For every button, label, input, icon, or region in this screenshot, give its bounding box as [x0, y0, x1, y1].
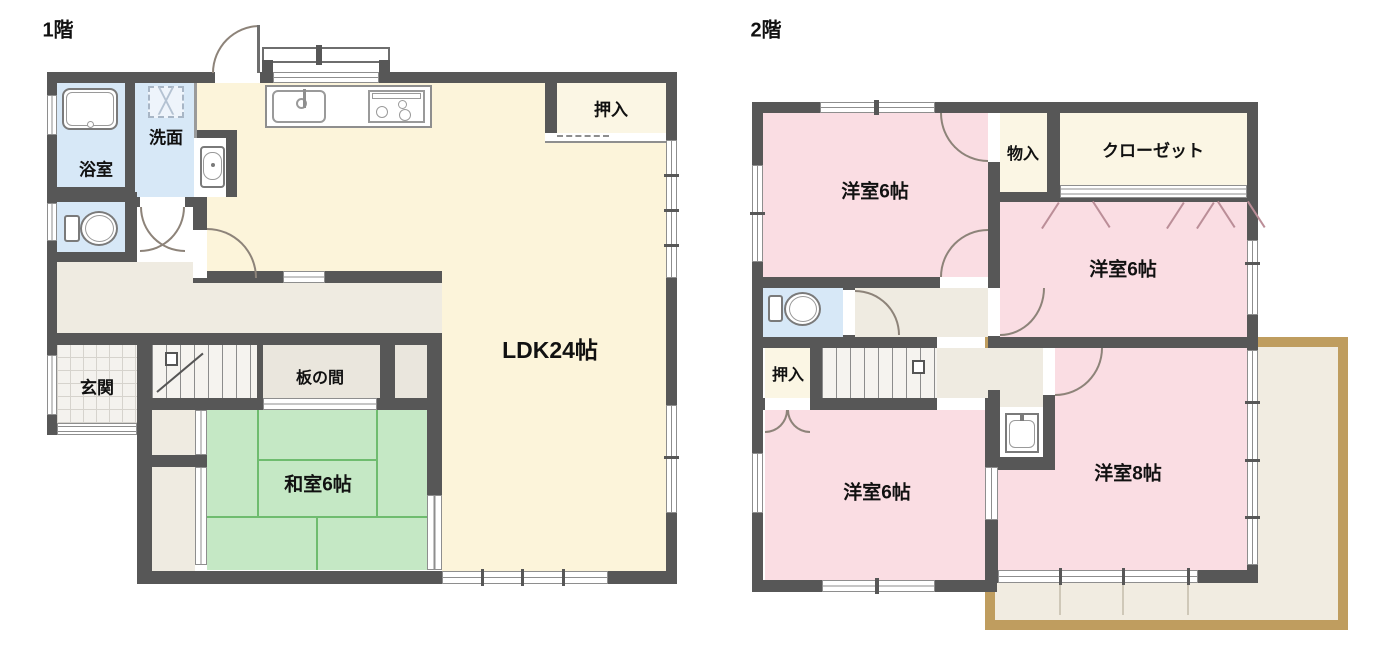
- room-ldk-lower: [442, 271, 666, 571]
- window-mullion: [316, 45, 322, 65]
- closet-strip-bottom: [152, 467, 195, 571]
- door-opening: [988, 288, 1000, 336]
- stairs-marker-2f: [912, 360, 925, 374]
- stove-burner: [398, 100, 407, 109]
- wall: [988, 457, 1055, 470]
- room-label-entrance: 玄関: [80, 374, 114, 399]
- toilet-seat-1f: [85, 215, 114, 242]
- wall: [47, 187, 135, 202]
- hallway-1f-2: [137, 283, 442, 333]
- door-opening: [215, 72, 260, 83]
- wall: [125, 83, 135, 192]
- balcony-divider: [1059, 585, 1061, 615]
- window: [442, 571, 608, 584]
- door-opening: [937, 398, 985, 410]
- sliding-door: [195, 410, 207, 455]
- wall: [752, 337, 937, 348]
- room-label-washroom: 洗面: [149, 124, 183, 149]
- window: [273, 72, 379, 83]
- room-d-ext: [988, 463, 1055, 570]
- tatami-line: [376, 410, 378, 517]
- oshiire-dashed-line: [557, 135, 609, 137]
- balcony-divider: [1187, 585, 1189, 615]
- toilet-seat-2f: [789, 296, 817, 322]
- window-tick: [664, 244, 679, 247]
- room-label-washitsu: 和室6帖: [284, 470, 352, 497]
- tatami-line: [257, 410, 259, 517]
- bathtub-drain: [87, 121, 94, 128]
- stove-burner: [376, 106, 388, 118]
- room-label-ldk: LDK24帖: [502, 331, 598, 365]
- room-label-closet-2f: クローゼット: [1102, 137, 1204, 162]
- door-opening: [765, 398, 810, 410]
- room-label-c: 洋室6帖: [843, 478, 911, 505]
- sliding-opening: [985, 467, 998, 520]
- window-tick: [1245, 401, 1260, 404]
- sliding-opening: [283, 271, 325, 283]
- room-label-storage: 物入: [1007, 140, 1039, 164]
- tatami-line: [258, 459, 377, 461]
- toilet-tank-1f: [64, 215, 80, 242]
- window-tick: [1187, 568, 1190, 585]
- stove-burner: [399, 109, 411, 121]
- window: [752, 453, 763, 513]
- window-tick: [521, 569, 524, 586]
- wall: [137, 333, 152, 583]
- sliding-opening: [263, 398, 377, 410]
- door-opening: [988, 113, 1000, 162]
- washbasin-tap-2f: [1020, 415, 1024, 421]
- window-tick: [1245, 262, 1260, 265]
- wall: [1000, 192, 1060, 202]
- window-tick: [750, 212, 765, 215]
- stairs-marker: [165, 352, 178, 366]
- window: [666, 405, 677, 513]
- washbasin-bowl-2f: [1009, 420, 1035, 448]
- wall: [1047, 102, 1060, 202]
- window: [47, 203, 57, 241]
- window-tick: [1122, 568, 1125, 585]
- kitchen-window: [262, 47, 390, 63]
- room-label-oshiire-2f: 押入: [772, 361, 804, 385]
- wall: [545, 83, 557, 133]
- window-tick: [875, 578, 879, 594]
- wall: [47, 252, 137, 262]
- tatami-line: [316, 517, 318, 570]
- window-stub: [379, 60, 390, 74]
- window: [998, 570, 1198, 583]
- window-tick: [1245, 459, 1260, 462]
- room-label-d: 洋室8帖: [1094, 459, 1162, 486]
- door-arc-front-door: [212, 25, 260, 73]
- window-tick: [664, 456, 679, 459]
- window-tick: [664, 209, 679, 212]
- closet-sliding-door: [1060, 185, 1247, 198]
- room-label-itanoma: 板の間: [296, 364, 344, 388]
- wall: [193, 197, 207, 230]
- room-label-bath: 浴室: [79, 156, 113, 181]
- door-opening: [140, 197, 185, 207]
- faucet-bar: [303, 89, 306, 108]
- window: [47, 355, 57, 415]
- floorplan-canvas: 1階: [0, 0, 1395, 667]
- floor1-title: 1階: [42, 14, 73, 43]
- washbasin-tap: [211, 163, 215, 167]
- window: [1247, 240, 1258, 315]
- floor2-title: 2階: [750, 14, 781, 43]
- wall: [427, 333, 442, 495]
- window-tick: [1059, 568, 1062, 585]
- door-opening: [940, 277, 988, 288]
- room-label-oshiire-1f: 押入: [594, 96, 628, 121]
- sliding-door: [427, 495, 442, 570]
- window: [47, 95, 57, 135]
- window-tick: [562, 569, 565, 586]
- itanoma-side: [395, 345, 427, 398]
- window-tick: [481, 569, 484, 586]
- window-mullion: [874, 100, 879, 115]
- door-opening: [193, 230, 207, 278]
- door-opening: [1043, 348, 1055, 395]
- room-label-a: 洋室6帖: [841, 177, 909, 204]
- sliding-door: [195, 467, 207, 565]
- wall: [380, 345, 395, 398]
- room-label-b: 洋室6帖: [1089, 255, 1157, 282]
- wall: [988, 162, 1000, 288]
- wall: [152, 455, 207, 467]
- door-leaf: [257, 25, 260, 73]
- wall: [47, 333, 442, 345]
- window: [1247, 350, 1258, 565]
- balcony-divider: [1122, 585, 1124, 615]
- toilet-tank-2f: [768, 295, 783, 322]
- wall: [257, 345, 263, 398]
- entrance-sliding-door: [57, 423, 137, 435]
- window-tick: [1245, 516, 1260, 519]
- window-tick: [664, 174, 679, 177]
- laundry-pan-icon: ╳: [148, 86, 184, 118]
- door-opening: [843, 290, 855, 335]
- wall: [993, 337, 1247, 348]
- stove-grill: [372, 93, 421, 99]
- window-stub: [262, 60, 273, 74]
- closet-strip-top: [152, 410, 195, 455]
